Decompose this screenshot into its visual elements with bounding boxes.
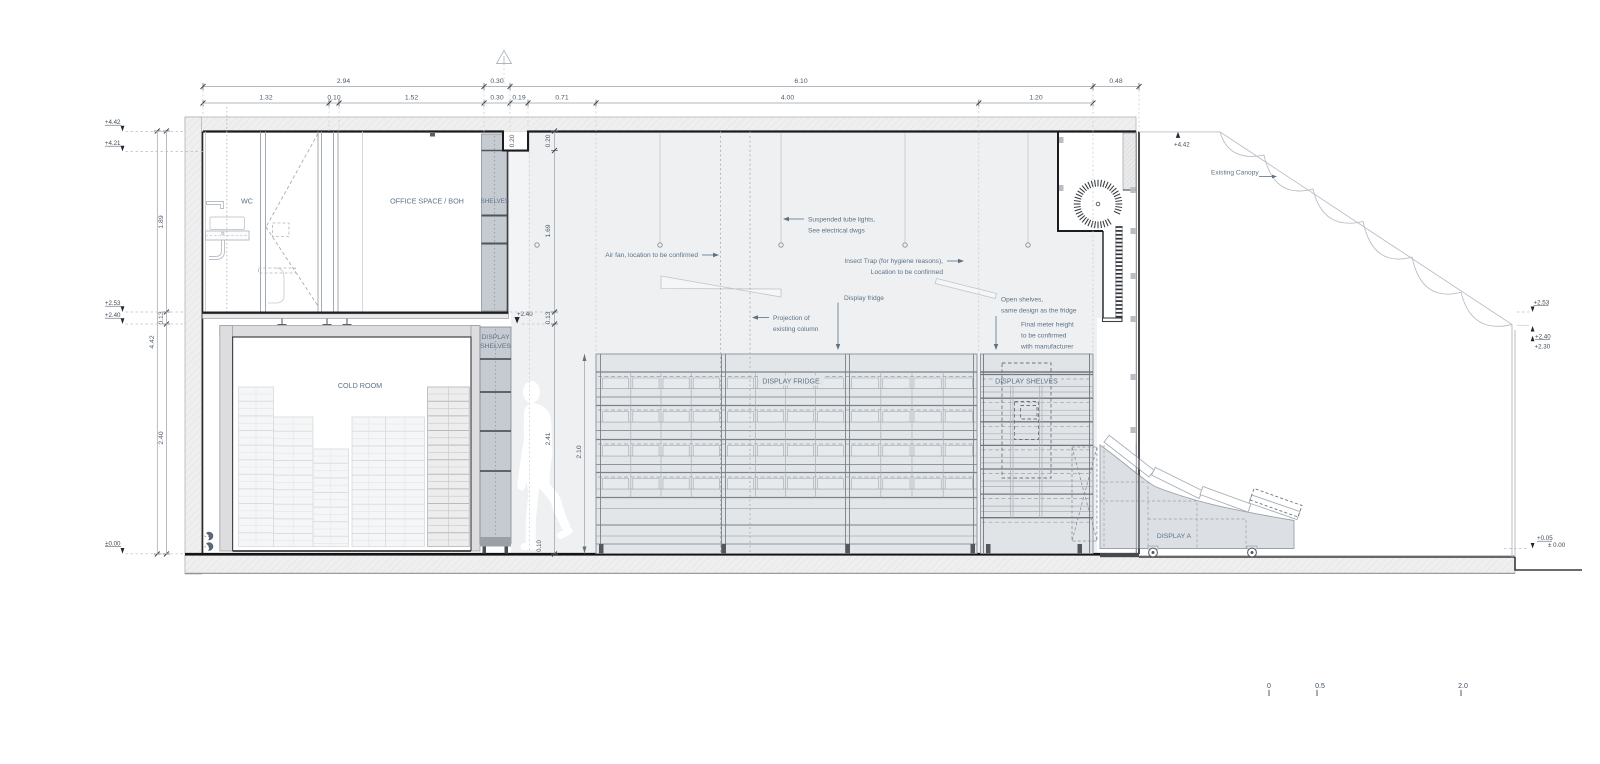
svg-text:0.13: 0.13 bbox=[545, 311, 552, 324]
svg-text:0.30: 0.30 bbox=[490, 78, 503, 85]
svg-text:1.32: 1.32 bbox=[259, 95, 272, 102]
svg-text:4.42: 4.42 bbox=[149, 335, 156, 348]
svg-text:0.5: 0.5 bbox=[1315, 683, 1325, 690]
svg-text:0.71: 0.71 bbox=[555, 95, 568, 102]
svg-text:6.10: 6.10 bbox=[794, 78, 807, 85]
svg-text:Display fridge: Display fridge bbox=[844, 295, 884, 302]
svg-text:with manufacturer: with manufacturer bbox=[1020, 344, 1074, 351]
svg-text:same design as the fridge: same design as the fridge bbox=[1001, 308, 1077, 315]
svg-text:2.94: 2.94 bbox=[337, 78, 350, 85]
svg-text:DISPLAY SHELVES: DISPLAY SHELVES bbox=[995, 379, 1058, 386]
svg-text:See electrical dwgs: See electrical dwgs bbox=[808, 228, 866, 235]
svg-text:0.20: 0.20 bbox=[545, 134, 552, 147]
svg-text:0.30: 0.30 bbox=[490, 95, 503, 102]
svg-text:0.10: 0.10 bbox=[537, 540, 543, 552]
svg-text:Insect Trap (for hygiene reaso: Insect Trap (for hygiene reasons), bbox=[844, 258, 943, 265]
svg-text:COLD ROOM: COLD ROOM bbox=[338, 381, 382, 390]
svg-text:0.13: 0.13 bbox=[158, 311, 165, 324]
svg-text:2.41: 2.41 bbox=[545, 432, 552, 445]
svg-text:0.10: 0.10 bbox=[327, 95, 340, 102]
svg-text:1.20: 1.20 bbox=[1029, 95, 1042, 102]
svg-text:Suspended tube lights,: Suspended tube lights, bbox=[808, 217, 875, 224]
svg-text:4.00: 4.00 bbox=[781, 95, 794, 102]
svg-text:1.52: 1.52 bbox=[405, 95, 418, 102]
svg-text:0: 0 bbox=[1267, 683, 1271, 690]
svg-text:1.69: 1.69 bbox=[545, 224, 552, 237]
svg-text:WC: WC bbox=[241, 197, 253, 206]
svg-text:2.10: 2.10 bbox=[576, 445, 583, 458]
svg-text:0.20: 0.20 bbox=[509, 134, 516, 147]
svg-text:+4.42: +4.42 bbox=[1174, 142, 1190, 149]
svg-text:to be confirmed: to be confirmed bbox=[1021, 333, 1067, 340]
svg-text:DISPLAY: DISPLAY bbox=[481, 334, 510, 341]
svg-text:2.40: 2.40 bbox=[158, 431, 165, 444]
svg-text:OFFICE SPACE / BOH: OFFICE SPACE / BOH bbox=[390, 197, 464, 206]
svg-text:Location to be confirmed: Location to be confirmed bbox=[871, 269, 944, 276]
svg-text:Final meter height: Final meter height bbox=[1021, 322, 1074, 329]
svg-text:DISPLAY A: DISPLAY A bbox=[1157, 533, 1192, 540]
svg-text:SHELVES: SHELVES bbox=[481, 198, 510, 205]
svg-text:Projection of: Projection of bbox=[773, 315, 810, 322]
svg-text:SHELVES: SHELVES bbox=[480, 343, 511, 350]
svg-text:Air fan, location to be confir: Air fan, location to be confirmed bbox=[605, 252, 698, 259]
svg-text:Open shelves,: Open shelves, bbox=[1001, 297, 1043, 304]
svg-text:0.19: 0.19 bbox=[512, 95, 525, 102]
svg-text:1.89: 1.89 bbox=[158, 215, 165, 228]
svg-text:Existing Canopy: Existing Canopy bbox=[1211, 170, 1259, 177]
svg-text:2.0: 2.0 bbox=[1458, 683, 1468, 690]
svg-text:existing column: existing column bbox=[773, 326, 819, 333]
svg-text:0.48: 0.48 bbox=[1109, 78, 1122, 85]
svg-text:± 0.00: ± 0.00 bbox=[1548, 542, 1566, 549]
svg-text:+2.30: +2.30 bbox=[1535, 344, 1551, 351]
svg-text:DISPLAY FRIDGE: DISPLAY FRIDGE bbox=[762, 379, 820, 386]
